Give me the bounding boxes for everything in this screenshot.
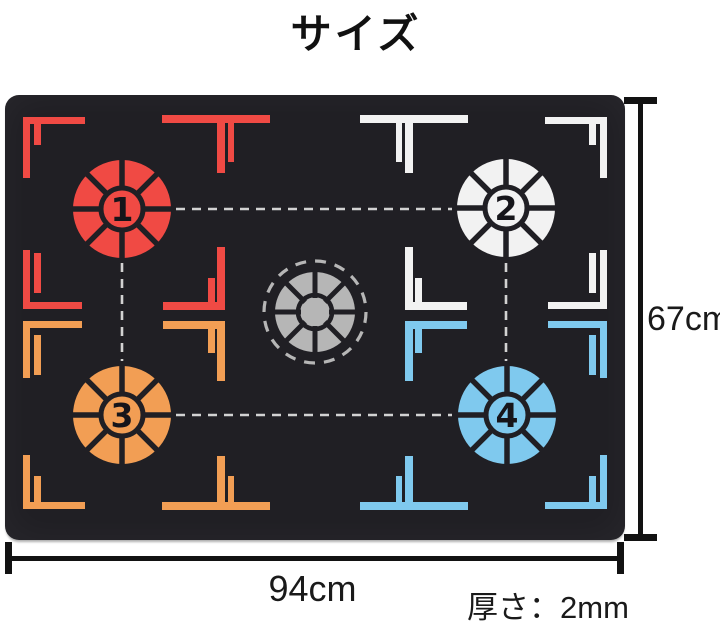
target-2: 2 — [456, 158, 556, 258]
marker-segment-red — [217, 123, 225, 173]
marker-segment-red — [23, 117, 30, 178]
marker-segment-red — [23, 250, 30, 309]
marker-segment-orange — [34, 335, 41, 375]
target-number: 1 — [111, 190, 134, 229]
marker-segment-blue — [396, 476, 402, 502]
marker-segment-white — [396, 123, 402, 162]
marker-segment-white — [415, 278, 422, 302]
marker-segment-orange — [217, 321, 225, 381]
marker-segment-orange — [162, 502, 270, 510]
marker-segment-white — [360, 115, 468, 123]
marker-segment-blue — [600, 321, 607, 378]
marker-segment-orange — [163, 321, 225, 329]
page-title: サイズ — [0, 0, 712, 60]
height-label: 67cm — [647, 300, 720, 339]
marker-segment-orange — [208, 329, 215, 353]
marker-segment-blue — [360, 502, 468, 510]
marker-segment-orange — [34, 476, 41, 502]
marker-segment-blue — [405, 456, 413, 502]
marker-segment-white — [405, 247, 413, 310]
marker-segment-white — [600, 250, 607, 309]
marker-segment-blue — [589, 335, 596, 375]
marker-segment-white — [600, 117, 607, 178]
marker-segment-blue — [405, 321, 467, 329]
marker-segment-red — [23, 302, 82, 309]
marker-segment-orange — [228, 476, 234, 502]
marker-segment-red — [208, 278, 215, 302]
marker-segment-blue — [600, 455, 607, 509]
target-number: 3 — [111, 396, 134, 435]
marker-segment-blue — [405, 321, 413, 381]
width-dimension-line — [8, 556, 622, 561]
center-target — [264, 261, 366, 363]
marker-segment-orange — [23, 502, 85, 509]
width-label: 94cm — [230, 568, 395, 610]
marker-segment-red — [217, 247, 225, 310]
marker-segment-blue — [545, 502, 607, 509]
thickness-label: 厚さ：2mm — [467, 582, 629, 621]
marker-segment-white — [405, 123, 413, 173]
height-dimension-line — [638, 100, 643, 538]
marker-segment-white — [545, 117, 607, 124]
marker-segment-orange — [217, 456, 225, 502]
marker-segment-red — [34, 124, 41, 145]
marker-segment-white — [589, 124, 596, 145]
marker-segment-orange — [23, 321, 30, 378]
target-3: 3 — [72, 365, 172, 465]
height-dimension-cap-bottom — [624, 534, 657, 541]
height-dimension-cap-top — [624, 97, 657, 104]
marker-segment-blue — [589, 476, 596, 502]
marker-segment-red — [163, 302, 225, 310]
marker-segment-red — [162, 115, 270, 123]
marker-segment-red — [23, 117, 85, 124]
marker-segment-white — [405, 302, 467, 310]
marker-segment-blue — [548, 321, 607, 328]
marker-segment-blue — [415, 329, 422, 353]
target-number: 2 — [495, 189, 518, 228]
target-4: 4 — [457, 365, 557, 465]
marker-segment-orange — [23, 321, 82, 328]
mat-svg: 1234 — [5, 95, 625, 540]
marker-segment-white — [548, 302, 607, 309]
size-diagram: サイズ 1234 67cm 94cm 厚さ：2mm — [0, 0, 720, 621]
marker-segment-red — [228, 123, 234, 162]
marker-segment-red — [34, 253, 41, 293]
target-number: 4 — [496, 396, 519, 435]
width-dimension-cap-left — [5, 542, 12, 574]
product-mat: 1234 — [5, 95, 625, 540]
width-dimension-cap-right — [617, 542, 624, 574]
marker-segment-orange — [23, 455, 30, 509]
marker-segment-white — [589, 253, 596, 293]
target-1: 1 — [72, 159, 172, 259]
